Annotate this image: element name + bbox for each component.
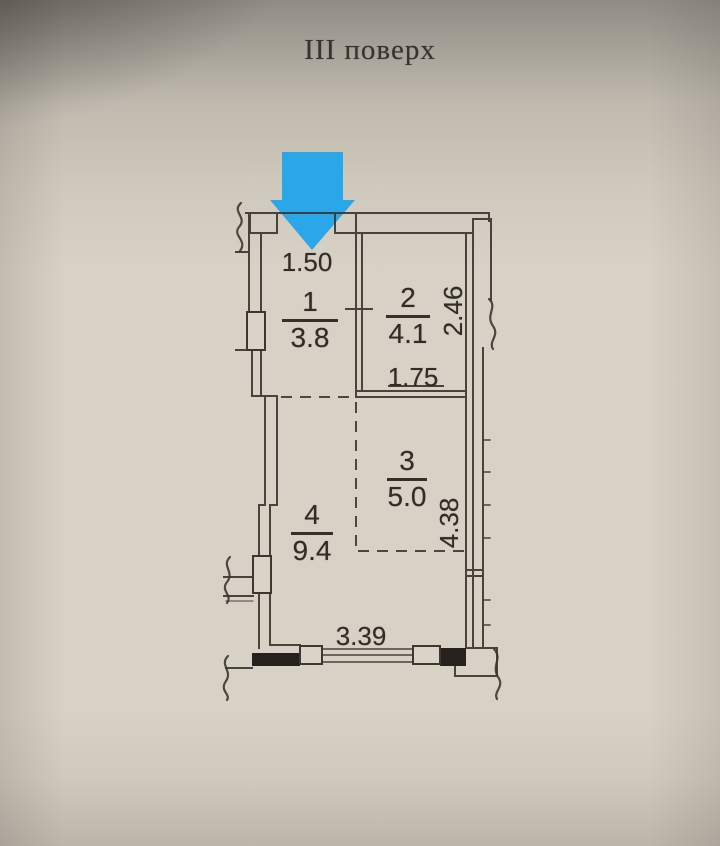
room-4-label: 4 9.4	[291, 501, 333, 565]
floor-plan-drawing	[0, 0, 720, 846]
walls	[224, 213, 497, 676]
dimension-room2-depth: 2.46	[440, 286, 466, 337]
room-4-area: 9.4	[293, 537, 332, 565]
room-3-area: 5.0	[388, 483, 427, 511]
room-2-number: 2	[400, 284, 416, 312]
room-4-number: 4	[304, 501, 320, 529]
entrance-arrow-icon	[270, 152, 355, 250]
dimension-bottom-width: 3.39	[336, 623, 387, 649]
floor-plan-photo: III поверх	[0, 0, 720, 846]
room-3-label: 3 5.0	[387, 447, 427, 511]
room-1-label: 1 3.8	[282, 288, 338, 352]
dimension-room3-depth: 4.38	[436, 498, 462, 549]
room-1-area: 3.8	[291, 324, 330, 352]
room-2-label: 2 4.1	[386, 284, 430, 348]
dimension-room2-width: 1.75	[388, 364, 439, 390]
room-1-number: 1	[302, 288, 318, 316]
dimension-entry-width: 1.50	[282, 249, 333, 275]
room-2-area: 4.1	[389, 320, 428, 348]
room-3-number: 3	[399, 447, 415, 475]
